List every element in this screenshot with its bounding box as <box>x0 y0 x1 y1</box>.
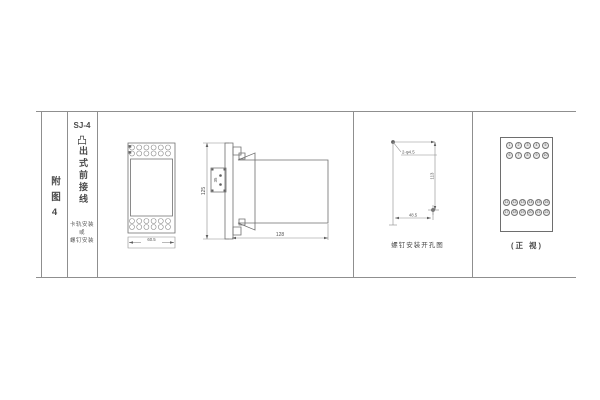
terminal-circle: 22 <box>543 209 550 216</box>
terminal-circle: 11 <box>503 199 510 206</box>
terminal-circle: 14 <box>527 199 534 206</box>
front-view-terminals <box>129 145 171 230</box>
front-view-width-dimension: 60.5 <box>128 237 175 248</box>
terminal-circle: 20 <box>527 209 534 216</box>
terminal-circle: 12 <box>511 199 518 206</box>
frame-divider-3 <box>97 111 98 277</box>
terminal-circle: 5 <box>542 142 549 149</box>
terminal-row-4: 171819202122 <box>503 209 550 216</box>
side-depth-dim-text: 128 <box>276 232 285 238</box>
frame-top-line <box>36 111 576 112</box>
terminal-circle: 15 <box>535 199 542 206</box>
figure-number-label: 附图4 <box>47 176 61 224</box>
frame-divider-1 <box>41 111 42 277</box>
panel-face-view: 12345 678910 111213141516 171819202122 <box>500 137 553 232</box>
mount-note-line-3: 螺钉安装 <box>66 237 98 245</box>
frame-bottom-line <box>36 277 576 278</box>
terminal-circle: 6 <box>506 152 513 159</box>
terminal-circle: 4 <box>533 142 540 149</box>
terminal-circle: 13 <box>519 199 526 206</box>
mount-note: 卡轨安装 或 螺钉安装 <box>66 221 98 245</box>
drill-diagram: 2-φ4.5 113 48.5 <box>355 128 470 238</box>
side-view-bracket: 35 <box>211 168 226 192</box>
drill-width-dimension: 48.5 <box>395 210 433 220</box>
panel-top-terminal-group: 12345 678910 <box>506 142 549 162</box>
terminal-circle: 16 <box>543 199 550 206</box>
terminal-circle: 9 <box>533 152 540 159</box>
terminal-circle: 3 <box>524 142 531 149</box>
terminal-circle: 8 <box>524 152 531 159</box>
mount-note-line-2: 或 <box>66 229 98 237</box>
terminal-circle: 2 <box>515 142 522 149</box>
protrude-symbol: 凸 <box>67 132 97 147</box>
drill-holes-label: 2-φ4.5 <box>402 150 415 155</box>
terminal-circle: 21 <box>535 209 542 216</box>
terminal-row-2: 678910 <box>506 152 549 159</box>
drill-height-dimension: 113 <box>430 142 437 210</box>
side-bracket-dim-text: 35 <box>213 177 218 182</box>
panel-face-caption: (正 视) <box>492 240 562 251</box>
drill-holes-label-group: 2-φ4.5 <box>393 142 437 155</box>
frame-divider-4 <box>353 111 354 277</box>
mount-note-line-1: 卡轨安装 <box>66 221 98 229</box>
terminal-circle: 1 <box>506 142 513 149</box>
front-view-drawing: 60.5 <box>122 138 182 253</box>
terminal-row-3: 111213141516 <box>503 199 550 206</box>
side-height-dim-text: 125 <box>201 187 207 196</box>
model-label: SJ-4 <box>67 121 97 130</box>
terminal-circle: 10 <box>542 152 549 159</box>
panel-bottom-terminal-group: 111213141516 171819202122 <box>503 199 550 219</box>
terminal-circle: 7 <box>515 152 522 159</box>
front-width-dim-text: 60.5 <box>147 237 156 242</box>
terminal-circle: 19 <box>519 209 526 216</box>
side-view-drawing: 125 35 128 <box>195 128 345 250</box>
terminal-circle: 18 <box>511 209 518 216</box>
drill-height-dim-text: 113 <box>430 172 435 179</box>
frame-divider-5 <box>472 111 473 277</box>
wiring-type-label: 出式前接线 <box>77 146 90 206</box>
drawing-sheet: 附图4 SJ-4 凸 出式前接线 卡轨安装 或 螺钉安装 60.5 <box>0 0 600 400</box>
terminal-circle: 17 <box>503 209 510 216</box>
drill-diagram-caption: 螺钉安装开孔图 <box>370 239 465 249</box>
drill-width-dim-text: 48.5 <box>409 212 418 217</box>
side-view-body <box>225 143 328 239</box>
terminal-row-1: 12345 <box>506 142 549 149</box>
